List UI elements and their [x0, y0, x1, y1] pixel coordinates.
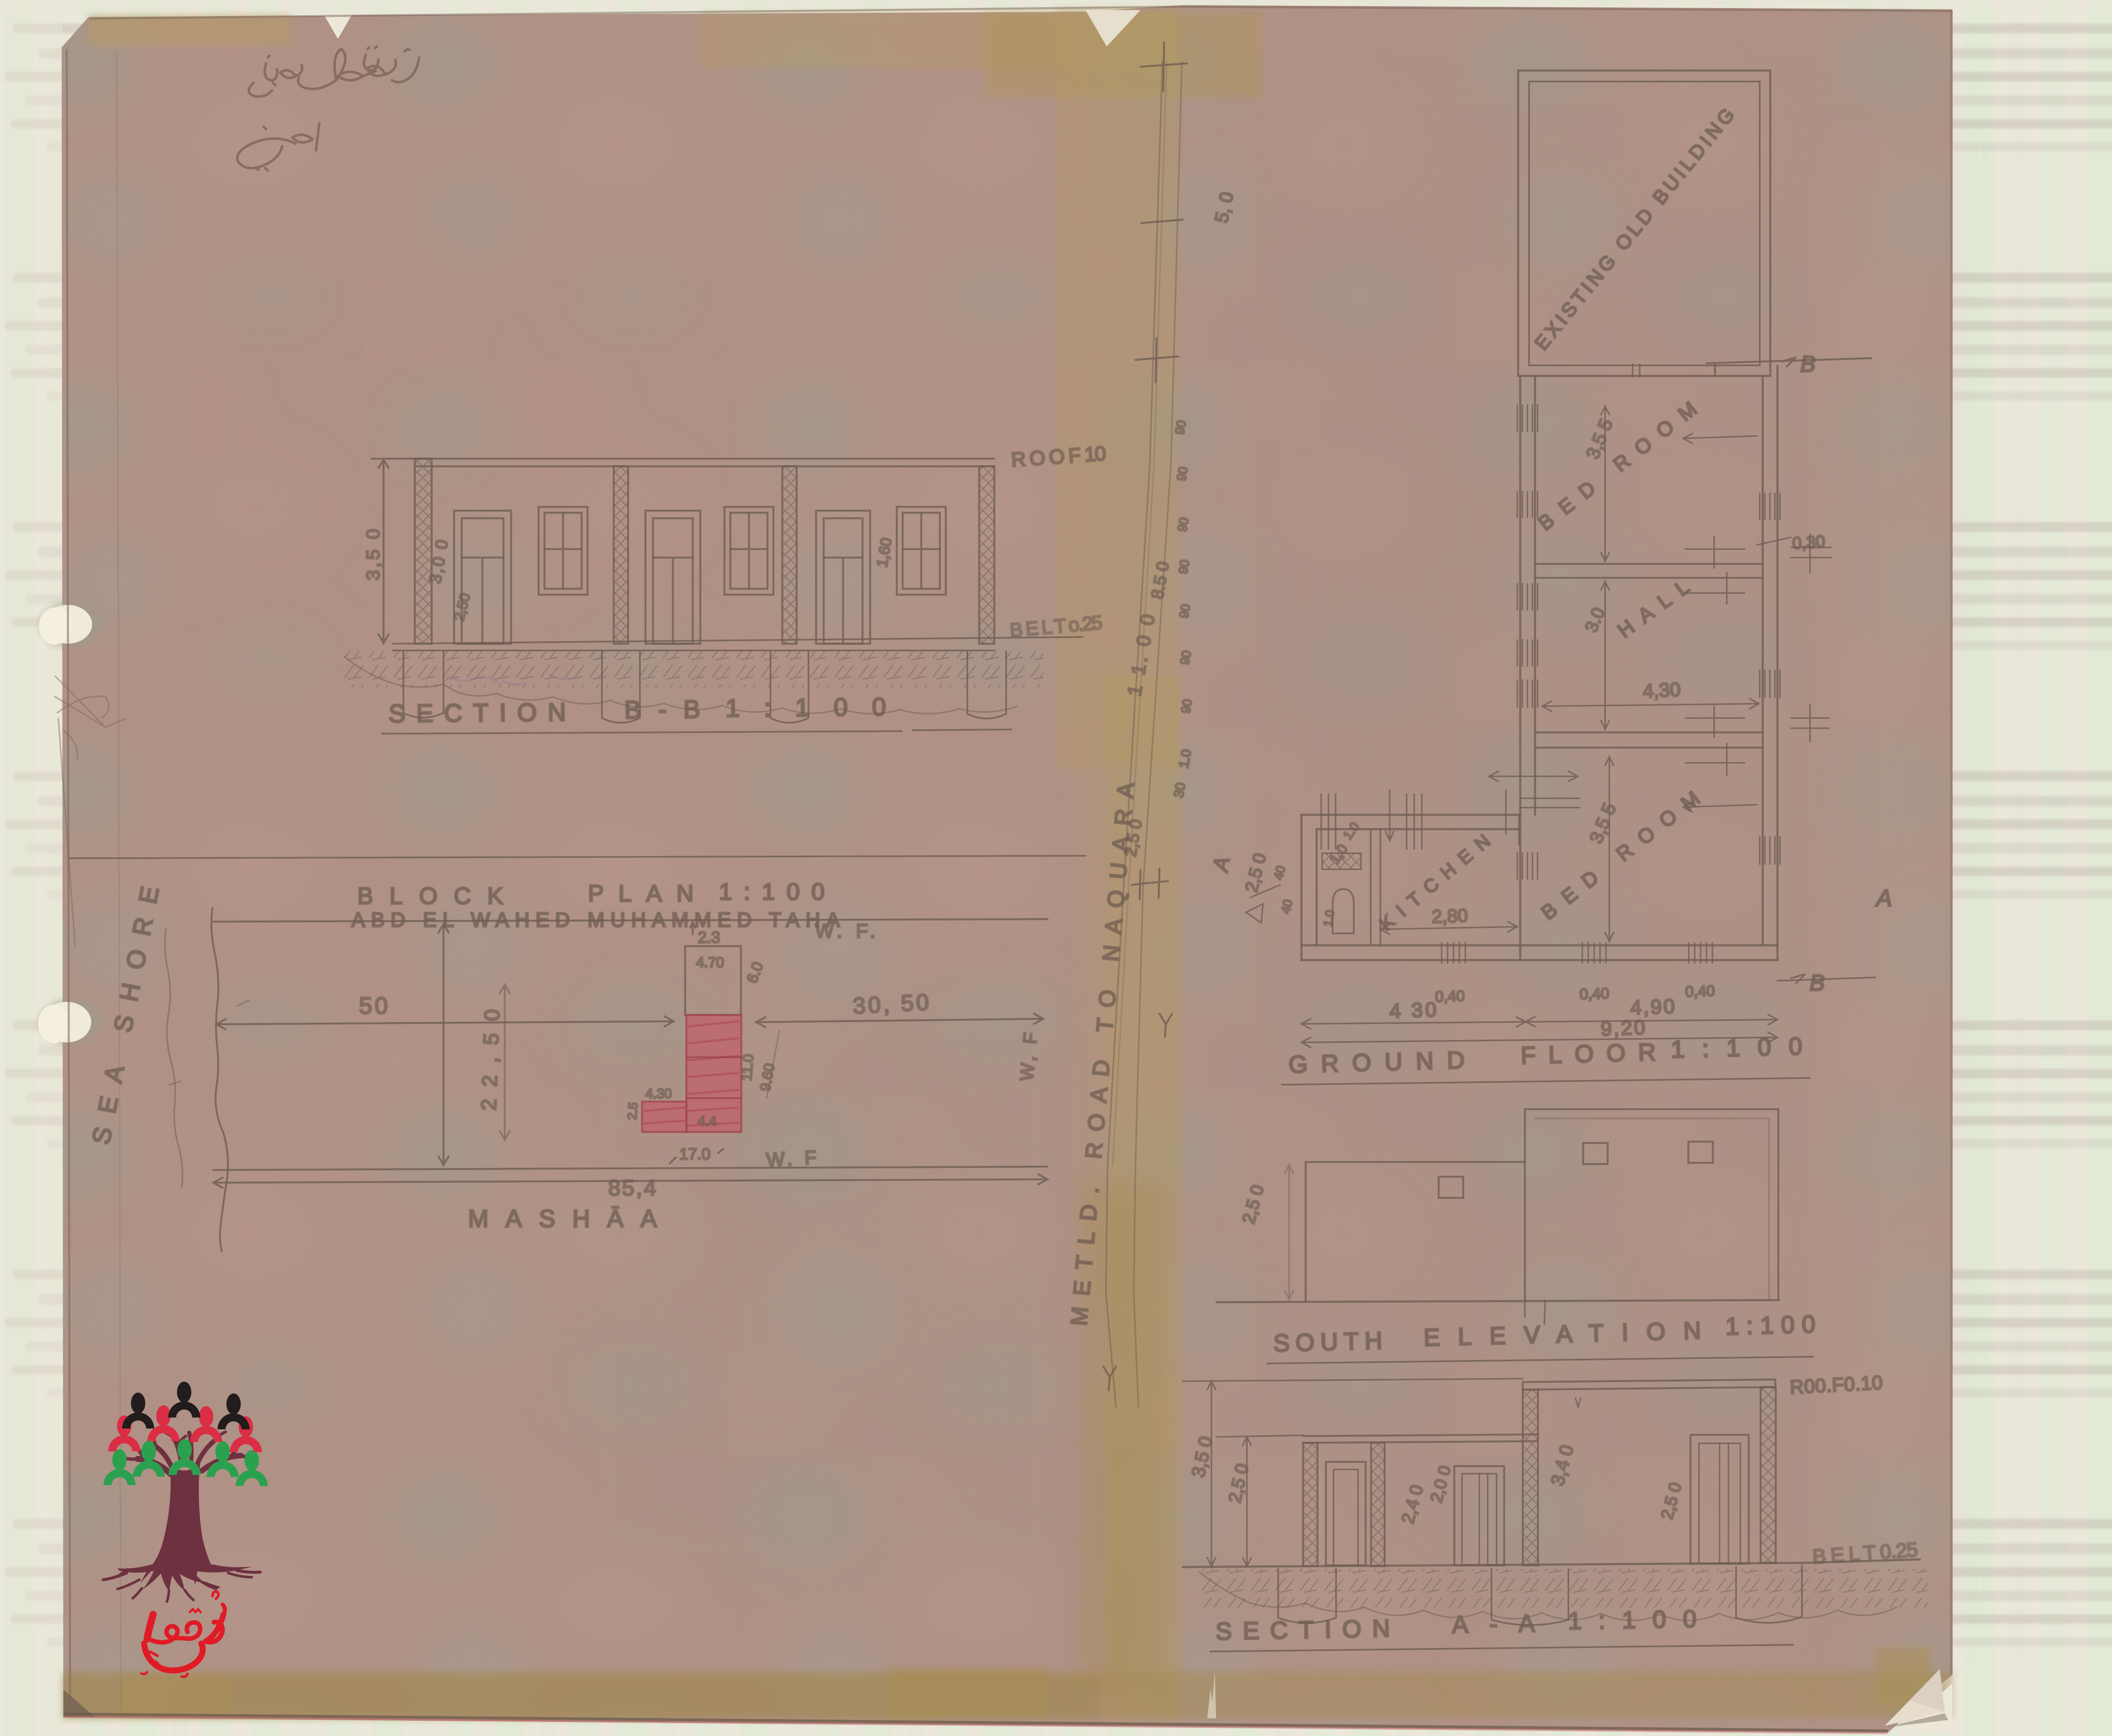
- svg-text:4,90: 4,90: [1630, 995, 1677, 1019]
- svg-text:2.5: 2.5: [625, 1102, 641, 1120]
- svg-text:2,80: 2,80: [1432, 905, 1468, 927]
- svg-text:17.0: 17.0: [679, 1146, 710, 1163]
- svg-text:4.4: 4.4: [698, 1113, 716, 1129]
- svg-text:50: 50: [359, 992, 390, 1019]
- svg-text:30, 50: 30, 50: [852, 989, 932, 1019]
- svg-text:0,30: 0,30: [1792, 532, 1826, 553]
- svg-text:11.0: 11.0: [738, 1053, 757, 1082]
- svg-text:A-A: A-A: [1452, 1610, 1535, 1638]
- svg-text:90: 90: [1178, 650, 1194, 666]
- svg-text:90: 90: [1177, 603, 1193, 620]
- svg-text:90: 90: [1178, 698, 1195, 715]
- svg-text:90: 90: [1176, 559, 1192, 575]
- svg-text:1.0: 1.0: [1176, 748, 1194, 769]
- svg-text:W. F.: W. F.: [815, 920, 879, 942]
- svg-text:2.3: 2.3: [698, 929, 720, 947]
- svg-text:90: 90: [1175, 517, 1191, 533]
- svg-text:85,4: 85,4: [608, 1176, 658, 1200]
- svg-text:9,20: 9,20: [1600, 1016, 1647, 1040]
- svg-text:W. F: W. F: [766, 1146, 820, 1171]
- svg-text:B: B: [1810, 970, 1825, 996]
- svg-text:B-B: B-B: [624, 695, 700, 724]
- svg-text:30: 30: [1170, 781, 1188, 799]
- svg-text:B: B: [1800, 351, 1815, 377]
- svg-text:0,40: 0,40: [1685, 982, 1715, 1000]
- svg-text:3,5 0: 3,5 0: [363, 526, 384, 580]
- svg-text:4 30: 4 30: [1389, 999, 1440, 1023]
- svg-text:4,30: 4,30: [1642, 678, 1681, 702]
- svg-text:1:100: 1:100: [1725, 1310, 1816, 1340]
- svg-text:4.30: 4.30: [645, 1086, 672, 1101]
- svg-text:0,40: 0,40: [1579, 985, 1609, 1003]
- svg-text:0,40: 0,40: [1435, 987, 1465, 1005]
- svg-text:A: A: [1875, 884, 1892, 911]
- svg-text:4.70: 4.70: [696, 955, 724, 971]
- svg-text:90: 90: [1174, 466, 1190, 482]
- svg-text:90: 90: [1173, 419, 1189, 436]
